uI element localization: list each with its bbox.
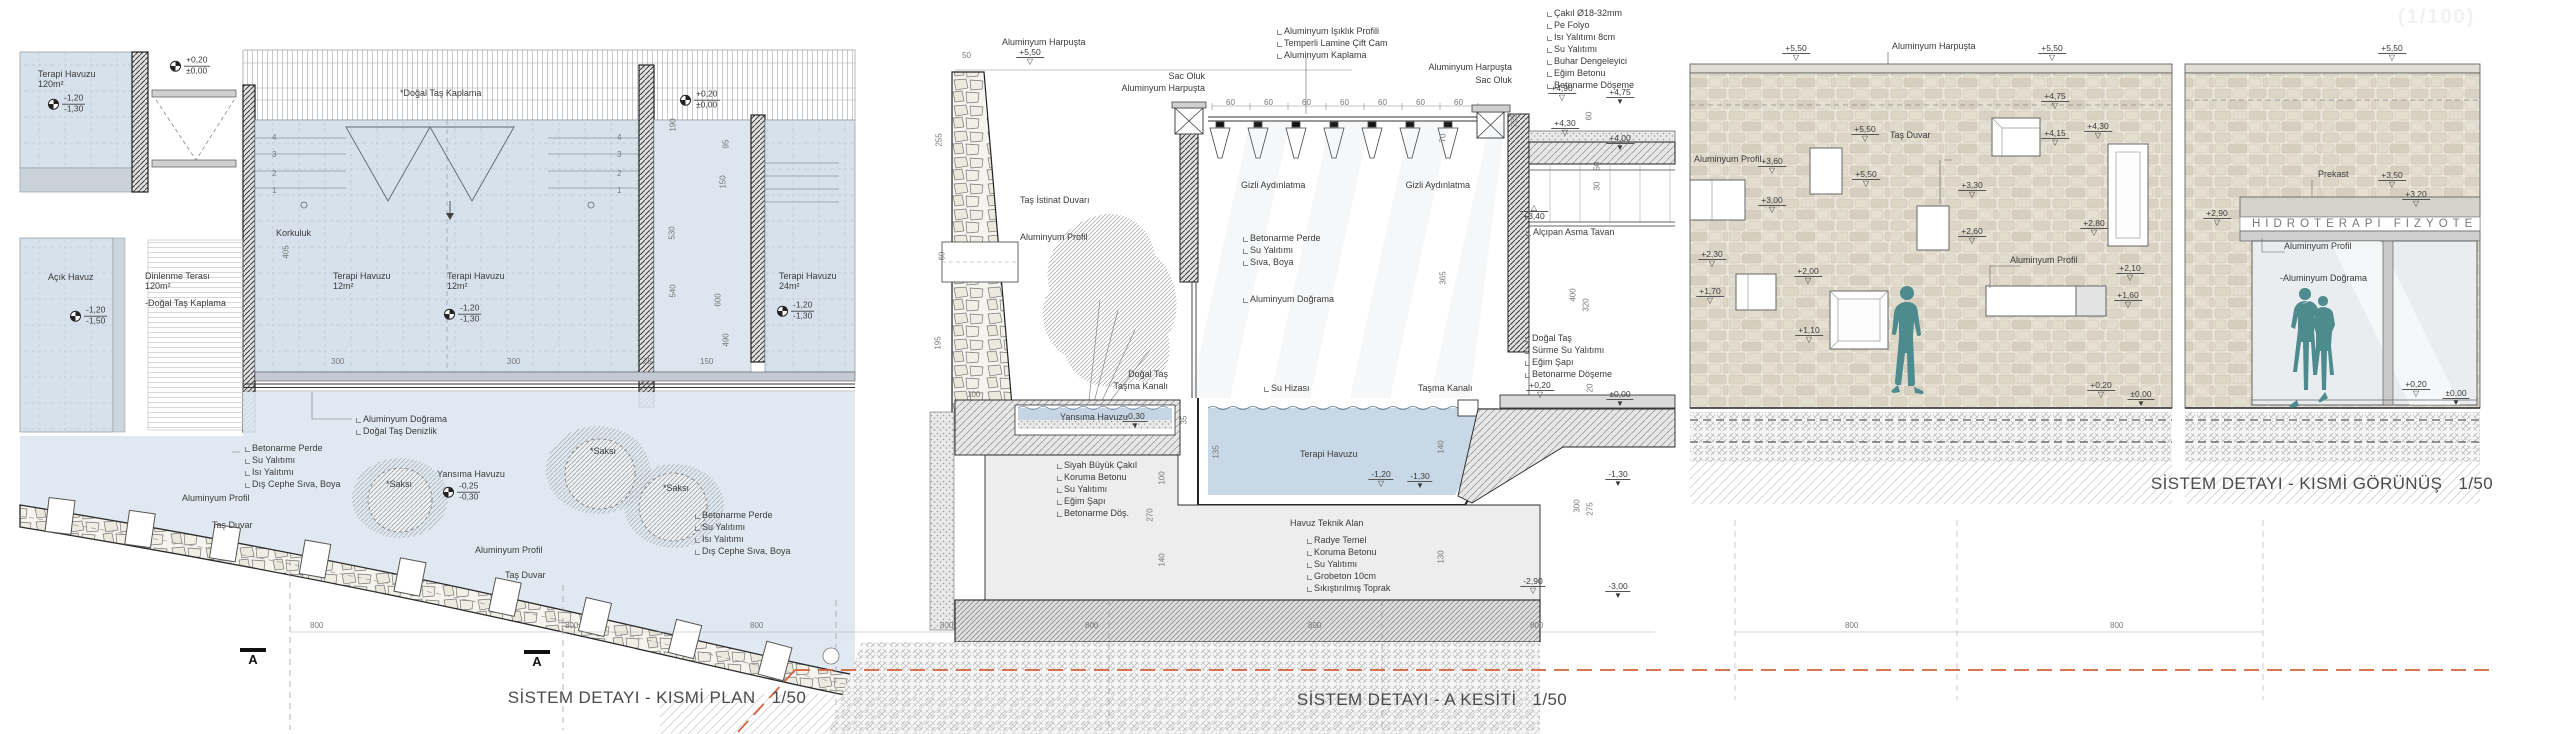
tree-icon <box>1043 214 1177 387</box>
architectural-sheet: Terapi Havuzu120m²*Doğal Taş KaplamaKork… <box>0 0 2560 734</box>
plan-title-scale: 1/50 <box>772 688 807 707</box>
light-shaft <box>1190 122 1505 398</box>
elevation-title-scale: 1/50 <box>2458 474 2493 493</box>
linework-layer <box>0 0 2560 734</box>
elevation-drawing <box>1690 52 2480 700</box>
section-title: SİSTEM DETAYI - A KESİTİ1/50 <box>1222 690 1642 710</box>
plan-title: SİSTEM DETAYI - KISMİ PLAN1/50 <box>447 688 867 708</box>
watermark: (1/100) <box>2398 6 2475 29</box>
entrance-sign: HİDROTERAPİ FİZYOTE <box>2252 217 2478 231</box>
elevation-title-text: SİSTEM DETAYI - KISMİ GÖRÜNÜŞ <box>2151 474 2443 493</box>
section-title-text: SİSTEM DETAYI - A KESİTİ <box>1297 690 1517 709</box>
plan-title-text: SİSTEM DETAYI - KISMİ PLAN <box>508 688 756 707</box>
elevation-title: SİSTEM DETAYI - KISMİ GÖRÜNÜŞ1/50 <box>2112 474 2532 494</box>
section-title-scale: 1/50 <box>1532 690 1567 709</box>
